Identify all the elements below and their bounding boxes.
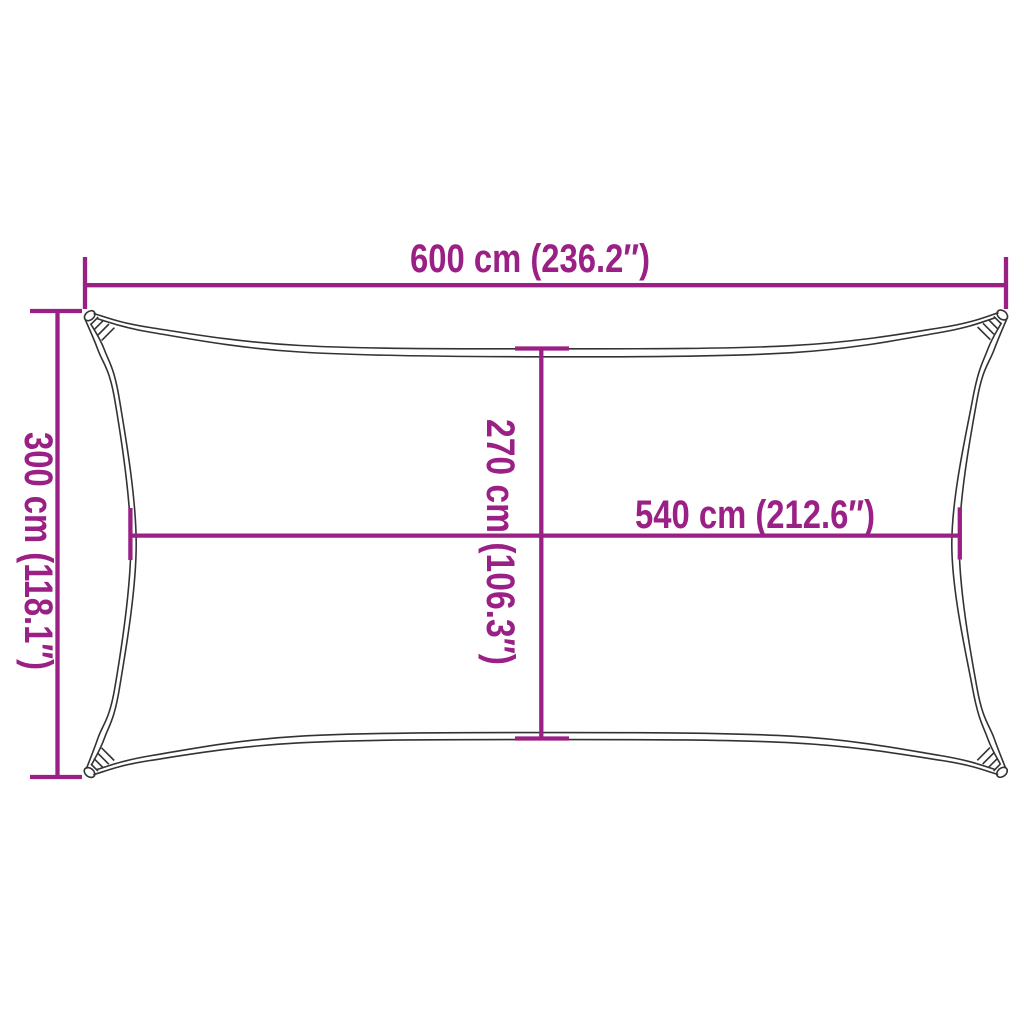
- svg-text:270 cm (106.3″): 270 cm (106.3″): [478, 419, 522, 665]
- svg-text:540 cm (212.6″): 540 cm (212.6″): [635, 493, 875, 537]
- svg-text:300 cm (118.1″): 300 cm (118.1″): [16, 432, 60, 670]
- svg-text:600 cm (236.2″): 600 cm (236.2″): [410, 237, 650, 281]
